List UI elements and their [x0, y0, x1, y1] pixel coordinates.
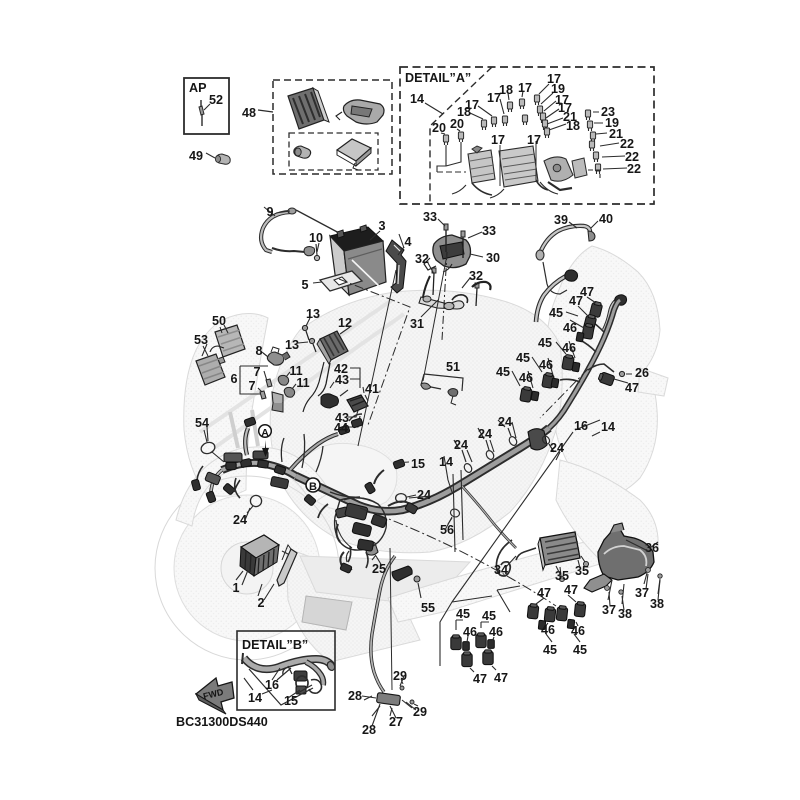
svg-text:22: 22	[627, 162, 641, 176]
svg-text:8: 8	[255, 344, 262, 358]
svg-text:47: 47	[494, 671, 508, 685]
svg-text:52: 52	[209, 93, 223, 107]
svg-text:48: 48	[242, 106, 256, 120]
svg-text:35: 35	[555, 569, 569, 583]
svg-text:18: 18	[499, 83, 513, 97]
svg-text:47: 47	[625, 381, 639, 395]
svg-text:22: 22	[620, 137, 634, 151]
svg-text:36: 36	[645, 541, 659, 555]
svg-text:20: 20	[432, 121, 446, 135]
svg-text:45: 45	[496, 365, 510, 379]
svg-text:45: 45	[482, 609, 496, 623]
svg-text:28: 28	[362, 723, 376, 737]
svg-text:55: 55	[421, 601, 435, 615]
svg-text:51: 51	[446, 360, 460, 374]
svg-text:32: 32	[469, 269, 483, 283]
svg-text:17: 17	[491, 133, 505, 147]
svg-text:17: 17	[527, 133, 541, 147]
svg-text:4: 4	[404, 235, 411, 249]
svg-text:24: 24	[233, 513, 247, 527]
svg-text:15: 15	[411, 457, 425, 471]
svg-text:25: 25	[372, 562, 386, 576]
svg-text:29: 29	[413, 705, 427, 719]
svg-text:46: 46	[489, 625, 503, 639]
svg-text:1: 1	[232, 581, 239, 595]
svg-text:43: 43	[335, 373, 349, 387]
svg-text:AP: AP	[189, 81, 207, 95]
svg-text:16: 16	[574, 419, 588, 433]
svg-text:B: B	[309, 481, 317, 493]
svg-text:14: 14	[248, 691, 262, 705]
svg-text:45: 45	[573, 643, 587, 657]
svg-text:38: 38	[650, 597, 664, 611]
svg-text:10: 10	[309, 231, 323, 245]
svg-text:24: 24	[417, 488, 431, 502]
svg-text:46: 46	[571, 624, 585, 638]
svg-text:7: 7	[248, 379, 255, 393]
svg-text:14: 14	[439, 455, 453, 469]
svg-text:40: 40	[599, 212, 613, 226]
svg-text:44: 44	[334, 421, 348, 435]
svg-text:20: 20	[450, 117, 464, 131]
svg-text:46: 46	[562, 341, 576, 355]
svg-text:31: 31	[410, 317, 424, 331]
svg-text:24: 24	[550, 441, 564, 455]
svg-text:47: 47	[569, 294, 583, 308]
svg-text:A: A	[261, 427, 269, 439]
svg-text:46: 46	[519, 371, 533, 385]
svg-text:38: 38	[618, 607, 632, 621]
svg-text:13: 13	[285, 338, 299, 352]
svg-text:7: 7	[253, 365, 260, 379]
svg-text:2: 2	[257, 596, 264, 610]
svg-text:45: 45	[538, 336, 552, 350]
svg-text:33: 33	[482, 224, 496, 238]
svg-text:5: 5	[301, 278, 308, 292]
svg-text:45: 45	[543, 643, 557, 657]
svg-text:26: 26	[635, 366, 649, 380]
svg-text:37: 37	[635, 586, 649, 600]
svg-text:39: 39	[554, 213, 568, 227]
svg-text:45: 45	[549, 306, 563, 320]
svg-text:12: 12	[338, 316, 352, 330]
svg-text:24: 24	[498, 415, 512, 429]
svg-text:46: 46	[539, 358, 553, 372]
svg-text:56: 56	[440, 523, 454, 537]
svg-text:DETAIL”A”: DETAIL”A”	[405, 71, 471, 85]
svg-text:30: 30	[486, 251, 500, 265]
svg-text:18: 18	[566, 119, 580, 133]
svg-text:BC31300DS440: BC31300DS440	[176, 715, 268, 729]
svg-text:11: 11	[296, 376, 309, 390]
svg-text:32: 32	[415, 252, 429, 266]
svg-text:17: 17	[518, 81, 532, 95]
svg-text:28: 28	[348, 689, 362, 703]
svg-text:47: 47	[537, 586, 551, 600]
svg-text:6: 6	[230, 372, 237, 386]
svg-text:37: 37	[602, 603, 616, 617]
svg-text:29: 29	[393, 669, 407, 683]
svg-text:46: 46	[563, 321, 577, 335]
svg-text:16: 16	[265, 678, 279, 692]
svg-text:24: 24	[454, 438, 468, 452]
svg-text:24: 24	[478, 427, 492, 441]
svg-text:47: 47	[473, 672, 487, 686]
svg-text:33: 33	[423, 210, 437, 224]
svg-text:34: 34	[494, 563, 508, 577]
svg-text:45: 45	[516, 351, 530, 365]
svg-text:45: 45	[456, 607, 470, 621]
svg-text:41: 41	[365, 382, 379, 396]
svg-text:46: 46	[463, 625, 477, 639]
svg-text:53: 53	[194, 333, 208, 347]
svg-text:47: 47	[564, 583, 578, 597]
svg-text:49: 49	[189, 149, 203, 163]
svg-text:35: 35	[575, 564, 589, 578]
svg-text:13: 13	[306, 307, 320, 321]
svg-text:14: 14	[601, 420, 615, 434]
svg-text:14: 14	[410, 92, 424, 106]
svg-text:9: 9	[266, 205, 273, 219]
svg-text:DETAIL”B”: DETAIL”B”	[242, 638, 308, 652]
svg-text:17: 17	[465, 98, 479, 112]
svg-text:46: 46	[541, 623, 555, 637]
